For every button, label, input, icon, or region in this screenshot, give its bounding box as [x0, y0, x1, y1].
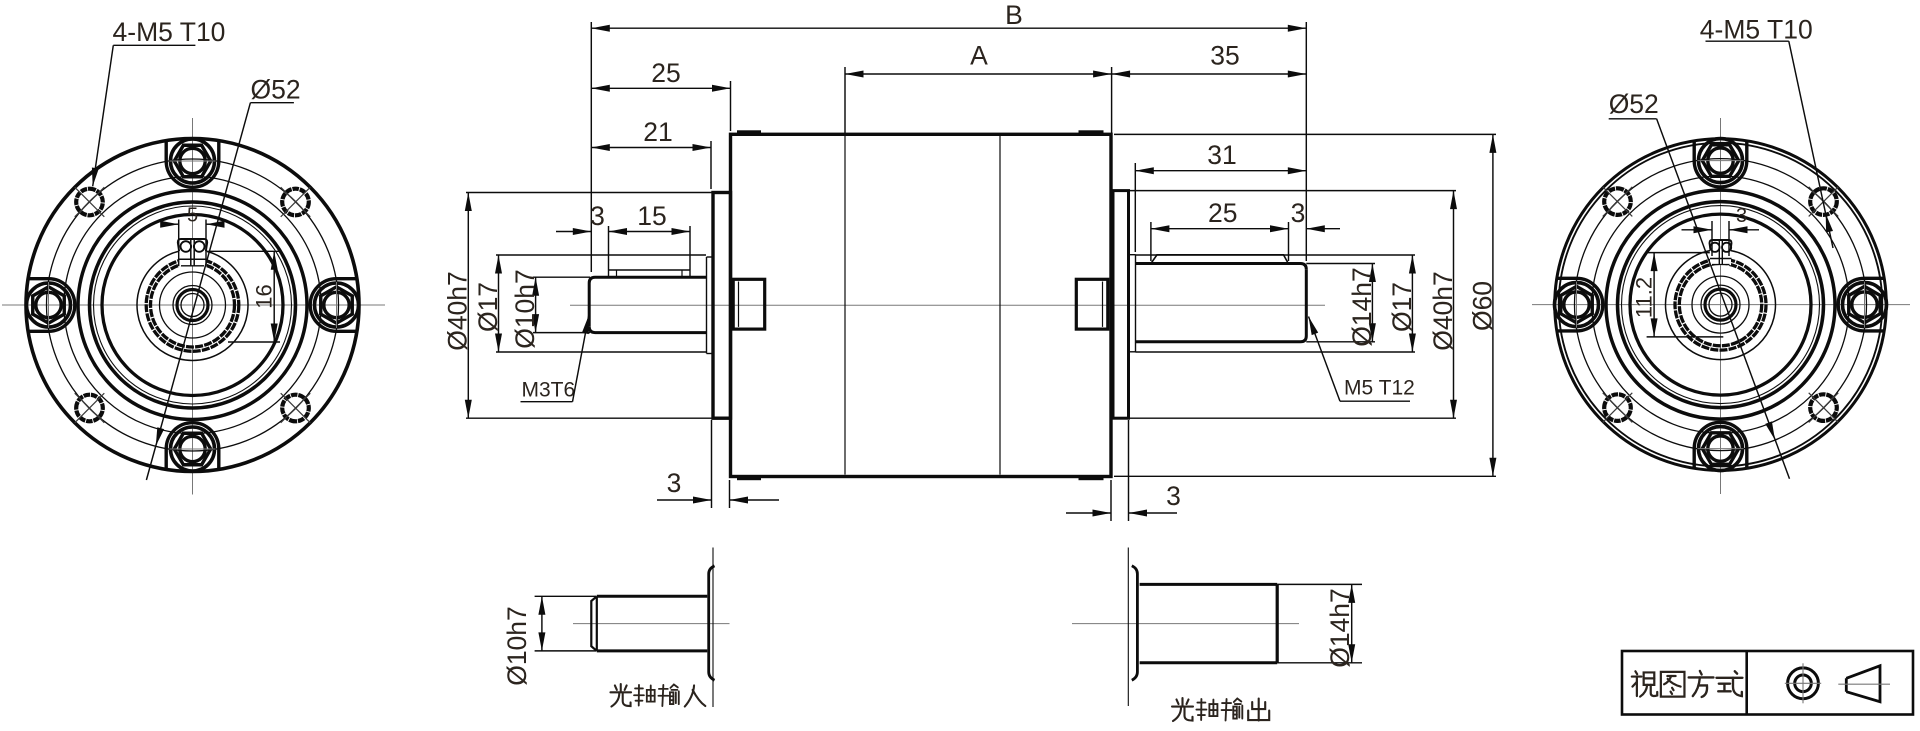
svg-text:A: A [970, 41, 988, 71]
svg-text:Ø14h7: Ø14h7 [1347, 267, 1377, 347]
svg-text:Ø60: Ø60 [1468, 281, 1498, 331]
svg-text:Ø10h7: Ø10h7 [510, 269, 540, 349]
svg-text:Ø10h7: Ø10h7 [502, 606, 532, 686]
svg-text:Ø52: Ø52 [251, 75, 301, 105]
svg-text:5: 5 [187, 205, 198, 227]
svg-text:Ø52: Ø52 [1609, 89, 1659, 119]
svg-text:Ø17: Ø17 [1387, 282, 1417, 332]
svg-text:M3T6: M3T6 [522, 379, 576, 402]
svg-text:4-M5 T10: 4-M5 T10 [113, 17, 226, 47]
svg-text:25: 25 [1208, 198, 1237, 228]
svg-text:Ø17: Ø17 [473, 282, 503, 332]
svg-text:3: 3 [1291, 198, 1306, 228]
svg-text:21: 21 [643, 117, 672, 147]
svg-text:25: 25 [651, 58, 680, 88]
svg-text:Ø14h7: Ø14h7 [1325, 588, 1355, 668]
svg-text:11.2: 11.2 [1632, 277, 1657, 318]
svg-text:Ø40h7: Ø40h7 [443, 271, 473, 351]
svg-text:3: 3 [1736, 205, 1747, 227]
svg-text:35: 35 [1210, 41, 1239, 71]
svg-text:3: 3 [590, 201, 605, 231]
svg-text:16: 16 [252, 284, 277, 308]
svg-text:3: 3 [667, 468, 682, 498]
svg-text:31: 31 [1207, 140, 1236, 170]
svg-text:B: B [1005, 0, 1023, 30]
svg-text:Ø40h7: Ø40h7 [1428, 271, 1458, 351]
svg-text:M5 T12: M5 T12 [1344, 377, 1415, 400]
svg-text:3: 3 [1166, 481, 1181, 511]
svg-text:4-M5 T10: 4-M5 T10 [1700, 14, 1813, 44]
svg-text:15: 15 [637, 201, 666, 231]
